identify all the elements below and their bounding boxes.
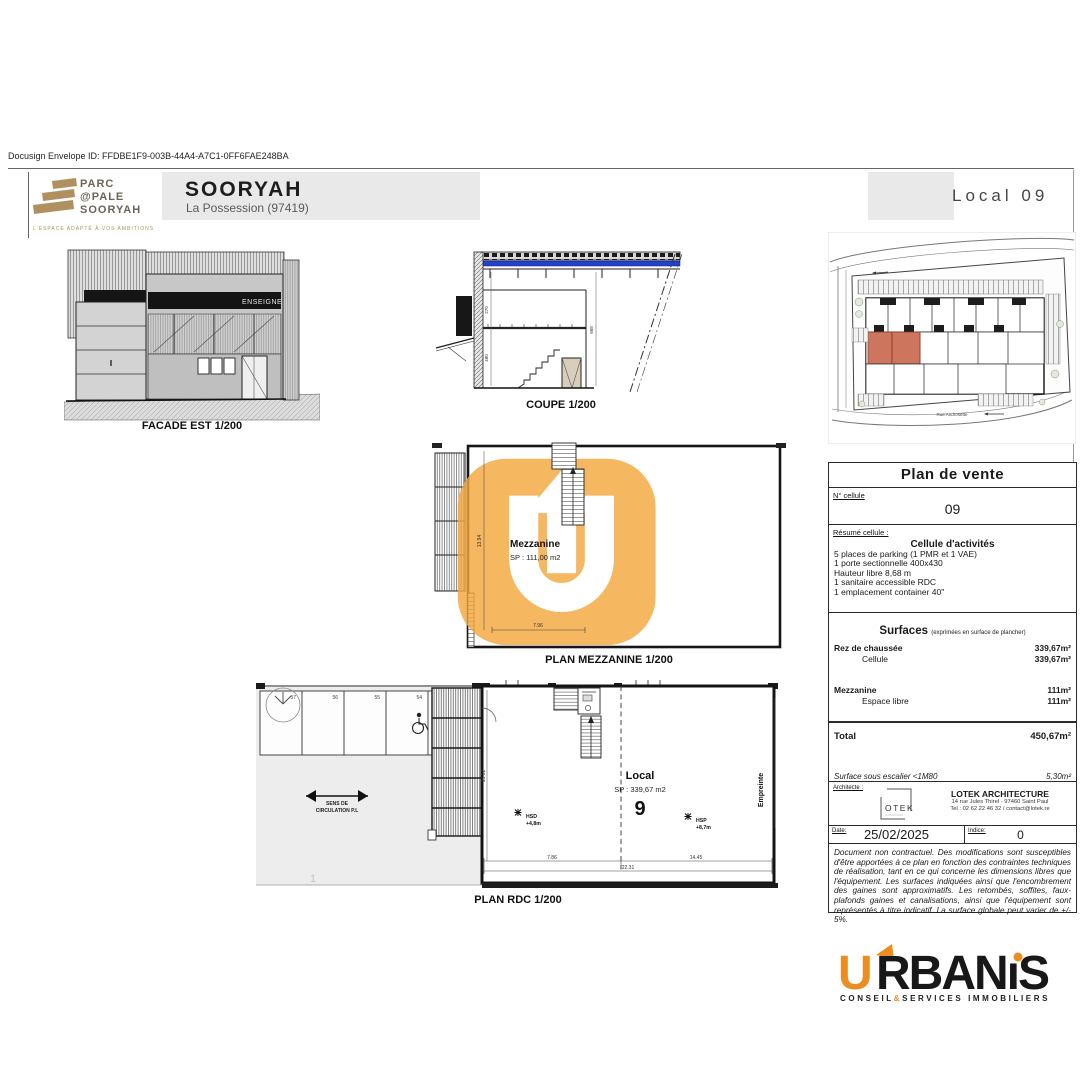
header-gray-strip: [868, 172, 954, 220]
urbanis-letter-s: S: [1018, 947, 1049, 1000]
coupe-section: 270 480 868: [436, 252, 682, 392]
architect-row: Architecte : OTEK LOTEK ARCHITECTURE 14 …: [829, 782, 1076, 826]
plan-de-vente-panel: Plan de vente N° cellule 09 Résumé cellu…: [828, 462, 1077, 913]
rdc-label: PLAN RDC 1/200: [256, 894, 780, 906]
left-rule: [28, 172, 29, 238]
surface-row: Espace libre111m²: [834, 696, 1071, 707]
surfaces-title: Surfaces: [879, 625, 928, 637]
lotek-logo: OTEK: [877, 787, 915, 821]
parc-opale-logo-text: PARC @PALE SOORYAH: [80, 178, 141, 217]
site-plan-map: Rue Androsette: [828, 232, 1076, 444]
urbanis-tagline-2: SERVICES IMMOBILIERS: [902, 994, 1050, 1003]
disclaimer: Document non contractuel. Des modificati…: [829, 844, 1076, 912]
page-mark: 1: [310, 873, 316, 885]
urbanis-tagline-1: CONSEIL: [840, 994, 894, 1003]
parc-opale-logo-icon: [32, 178, 78, 218]
surface-row: Cellule339,67m²: [834, 654, 1071, 665]
logo-line-3: SOORYAH: [80, 204, 141, 217]
empreinte-label: Empreinte: [758, 773, 765, 807]
coupe-label: COUPE 1/200: [428, 399, 694, 411]
urbanis-i-dot: [1014, 953, 1023, 962]
docusign-envelope-id: Docusign Envelope ID: FFDBE1F9-003B-44A4…: [8, 151, 289, 161]
facade-sign-text: ENSEIGNE: [242, 299, 282, 306]
svg-text:RBANıS: RBANıS: [876, 947, 1049, 1000]
coupe-dim-868: 868: [589, 326, 594, 334]
mezzanine-height-dim: 13.94: [477, 535, 483, 548]
rdc-plan: 57 56 55 54 SENS DE CIRCULATION P.L: [256, 680, 778, 888]
facade-elevation: ENSEIGNE: [64, 250, 320, 420]
facade-label: FACADE EST 1/200: [64, 420, 320, 432]
resume-label: Résumé cellule :: [833, 528, 888, 537]
urbanis-watermark: [458, 459, 656, 645]
mezzanine-width-dim: 7.96: [533, 623, 543, 629]
dim-total: 22.31: [622, 865, 635, 871]
panel-title: Plan de vente: [829, 463, 1076, 488]
louver-block: [428, 688, 482, 840]
logo-tagline: L'ESPACE ADAPTÉ À VOS AMBITIONS: [33, 226, 154, 232]
svg-text:+8,7m: +8,7m: [696, 825, 711, 831]
parking-number: 54: [416, 695, 422, 701]
architect-name: LOTEK ARCHITECTURE: [929, 789, 1071, 799]
date-value: 25/02/2025: [829, 827, 964, 842]
cell-number-value: 09: [829, 501, 1076, 517]
local-sp-label: SP : 339,67 m2: [614, 785, 666, 794]
indice-value: 0: [965, 828, 1076, 842]
mezzanine-plan: Mezzanine SP : 111,00 m2 7.96 13.94: [432, 443, 786, 647]
escalier-row: Surface sous escalier <1M805,30m²: [834, 772, 1071, 781]
indice-cell: Indice: 0: [965, 826, 1076, 843]
logo-line-1: PARC: [80, 178, 141, 191]
svg-text:+4,8m: +4,8m: [526, 821, 541, 827]
parking-number: 57: [290, 695, 296, 701]
surfaces-section: Surfaces (exprimées en surface de planch…: [829, 613, 1076, 782]
dim-right: 14.45: [690, 855, 703, 861]
project-title: SOORYAH: [185, 178, 302, 202]
top-rule: [8, 168, 1074, 169]
local-number: 9: [634, 798, 645, 820]
surfaces-note: (exprimées en surface de plancher): [931, 630, 1025, 636]
total-row: Total450,67m²: [829, 721, 1076, 742]
project-subtitle: La Possession (97419): [186, 201, 309, 215]
mezzanine-sp-label: SP : 111,00 m2: [510, 553, 560, 562]
cell-number-row: N° cellule 09: [829, 488, 1076, 525]
local-room-label: Local: [626, 770, 655, 782]
sens-line-2: CIRCULATION P.L: [316, 808, 359, 814]
mezzanine-label: PLAN MEZZANINE 1/200: [432, 654, 786, 666]
architect-label: Architecte :: [833, 785, 863, 791]
logo-line-2: @PALE: [80, 191, 141, 204]
svg-text:HSD: HSD: [526, 814, 537, 820]
dim-height: 15.02: [481, 770, 487, 783]
parking-number: 55: [374, 695, 380, 701]
architect-phone: Tel : 02 62 22 46 32 / contact@lotek.re: [929, 806, 1071, 813]
dim-left: 7.86: [547, 855, 557, 861]
mezzanine-plan-drawing: Mezzanine SP : 111,00 m2 7.96 13.94: [432, 441, 786, 653]
facade-est-drawing: ENSEIGNE: [64, 242, 320, 428]
coupe-dim-270: 270: [484, 306, 489, 314]
surface-row: Mezzanine111m²: [834, 685, 1071, 696]
mezzanine-room-label: Mezzanine: [510, 539, 560, 550]
site-plan: Rue Androsette: [828, 232, 1076, 444]
resume-row: Résumé cellule : Cellule d'activités 5 p…: [829, 525, 1076, 614]
parking-number: 56: [332, 695, 338, 701]
local-reference: Local 09: [952, 186, 1048, 206]
urbanis-letter-u: U: [838, 947, 871, 1000]
svg-text:CONSEIL&SERVICES IMMOBILIERS: CONSEIL&SERVICES IMMOBILIERS: [840, 994, 1050, 1003]
date-cell: Date: 25/02/2025: [829, 826, 965, 843]
site-street-label: Rue Androsette: [936, 412, 968, 417]
lotek-logo-text: OTEK: [885, 803, 914, 813]
surface-row: Rez de chaussée339,67m²: [834, 643, 1071, 654]
cell-number-label: N° cellule: [833, 491, 865, 500]
date-indice-row: Date: 25/02/2025 Indice: 0: [829, 826, 1076, 844]
svg-text:HSP: HSP: [696, 818, 707, 824]
coupe-drawing: 270 480 868: [428, 246, 694, 396]
urbanis-letters-rban: RBAN: [876, 947, 1007, 1000]
plan-sheet: Docusign Envelope ID: FFDBE1F9-003B-44A4…: [0, 0, 1080, 1080]
rdc-plan-drawing: 57 56 55 54 SENS DE CIRCULATION P.L: [256, 678, 780, 892]
resume-line: 1 emplacement container 40": [829, 588, 1076, 598]
urbanis-logo: U RBANıS CONSEIL&SERVICES IMMOBILIERS: [830, 942, 1070, 1004]
coupe-dim-480: 480: [484, 354, 489, 362]
sens-line-1: SENS DE: [326, 801, 349, 807]
urbanis-tagline-amp: &: [894, 994, 902, 1003]
highlighted-cell-09: [868, 332, 920, 364]
